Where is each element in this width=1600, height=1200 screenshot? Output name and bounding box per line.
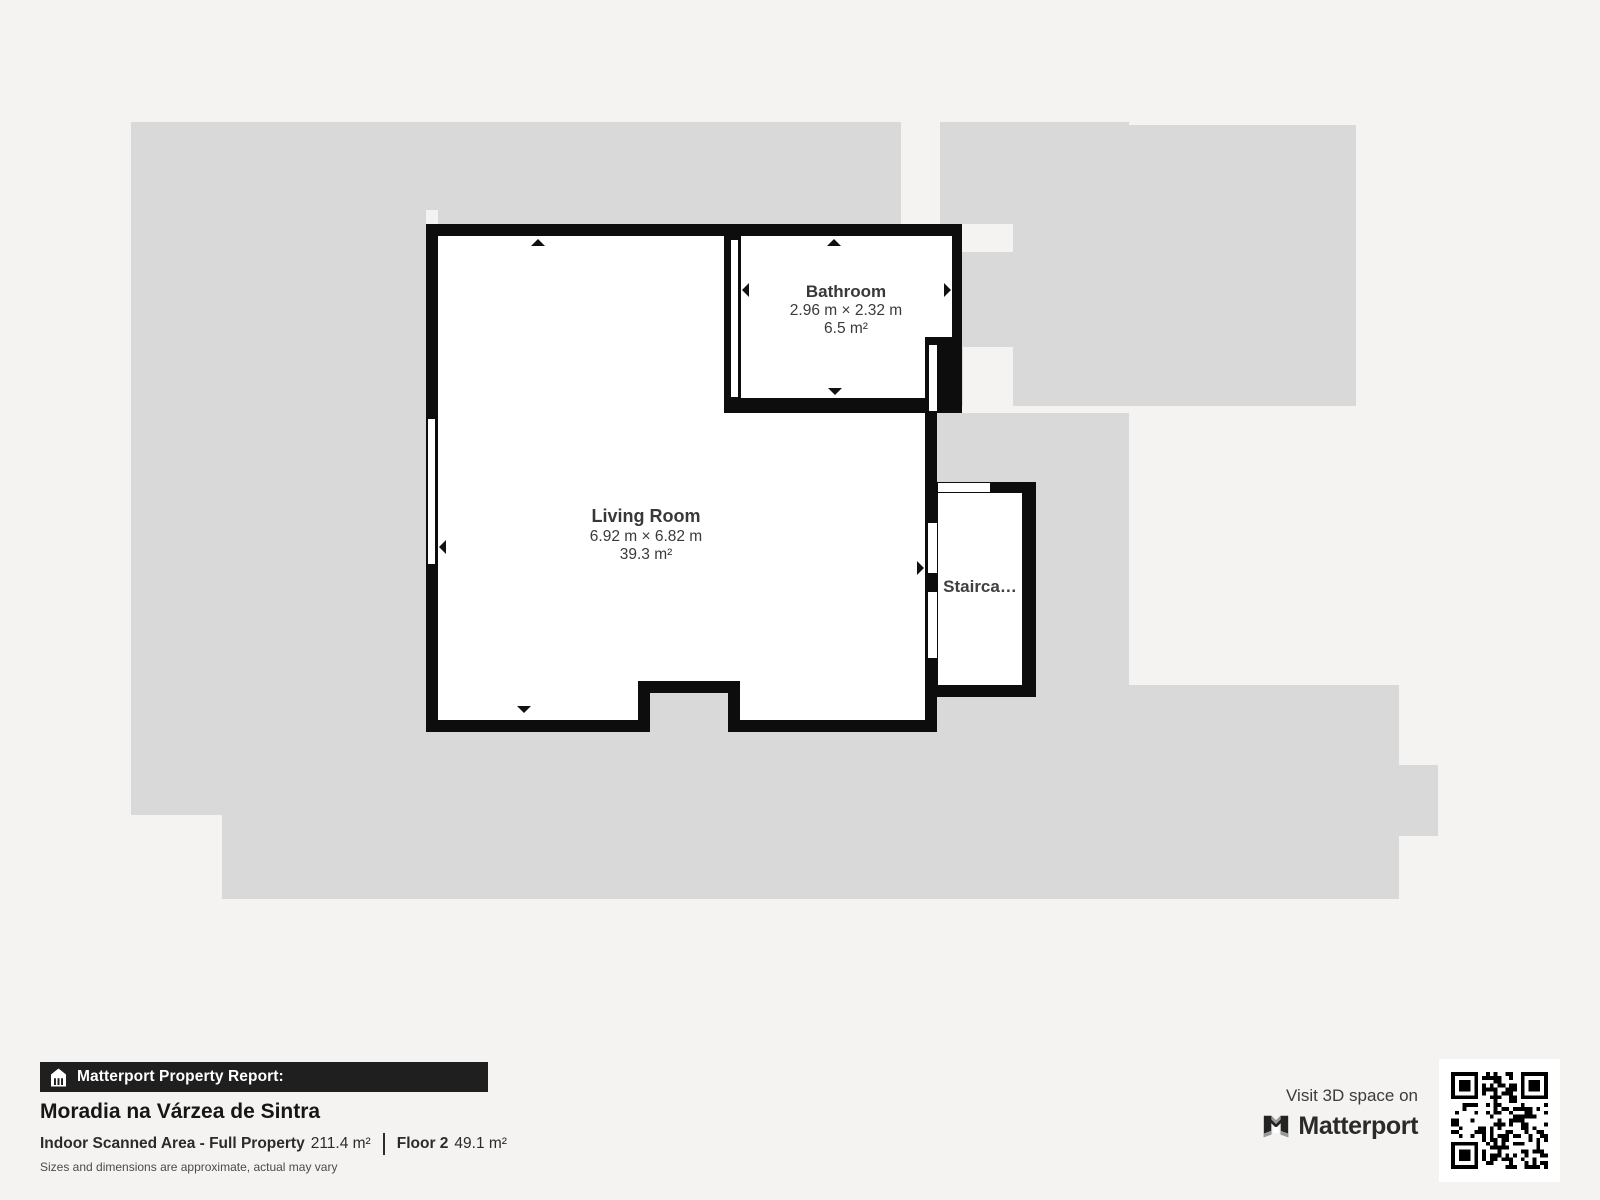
room-name: Bathroom [746,281,946,302]
scanned-area-label: Indoor Scanned Area - Full Property [40,1135,305,1153]
visit-3d-cta: Visit 3D space on Matterport [1261,1086,1418,1141]
property-name: Moradia na Várzea de Sintra [40,1100,320,1124]
wall-top [426,224,962,236]
marker-arrow-icon [917,561,924,575]
house-icon [51,1068,66,1087]
chimney-opening [650,693,728,732]
marker-arrow-icon [517,706,531,713]
chimney-wall [728,681,740,732]
qr-pattern [1451,1072,1548,1169]
property-report-page: Living Room 6.92 m × 6.82 m 39.3 m² Bath… [0,0,1600,1200]
staircase-top-opening [938,483,990,492]
room-name: Living Room [546,505,746,528]
chimney-wall [638,681,650,732]
matterport-wordmark: Matterport [1298,1112,1418,1141]
door-marker [928,523,937,573]
window-marker [428,419,435,564]
marker-arrow-icon [531,239,545,246]
room-dimensions: 2.96 m × 2.32 m [746,302,946,320]
qr-code [1439,1059,1560,1182]
report-banner: Matterport Property Report: [40,1062,488,1092]
marker-arrow-icon [828,388,842,395]
floor-label: Floor 2 [397,1135,449,1153]
matterport-logo: Matterport [1261,1111,1418,1141]
room-area: 39.3 m² [546,546,746,564]
area-stats: Indoor Scanned Area - Full Property 211.… [40,1132,507,1156]
door-marker [929,345,937,411]
visit-text: Visit 3D space on [1261,1086,1418,1106]
marker-arrow-icon [439,540,446,554]
room-dimensions: 6.92 m × 6.82 m [546,528,746,546]
scanned-area-value: 211.4 m² [311,1135,371,1153]
door-marker [928,592,937,658]
room-label-bathroom: Bathroom 2.96 m × 2.32 m 6.5 m² [746,281,946,338]
room-area: 6.5 m² [746,320,946,338]
floor-area-value: 49.1 m² [454,1135,507,1153]
report-banner-label: Matterport Property Report: [77,1068,284,1086]
matterport-mark-icon [1261,1111,1291,1141]
floor-plan: Living Room 6.92 m × 6.82 m 39.3 m² Bath… [0,0,1600,1200]
room-label-staircase: Stairca… [930,577,1030,597]
disclaimer-text: Sizes and dimensions are approximate, ac… [40,1160,337,1174]
chimney-wall [638,681,740,693]
door-marker [731,240,738,397]
stats-divider [383,1133,385,1155]
marker-arrow-icon [827,239,841,246]
room-label-living-room: Living Room 6.92 m × 6.82 m 39.3 m² [546,505,746,564]
wall-bathroom-right [952,224,962,413]
